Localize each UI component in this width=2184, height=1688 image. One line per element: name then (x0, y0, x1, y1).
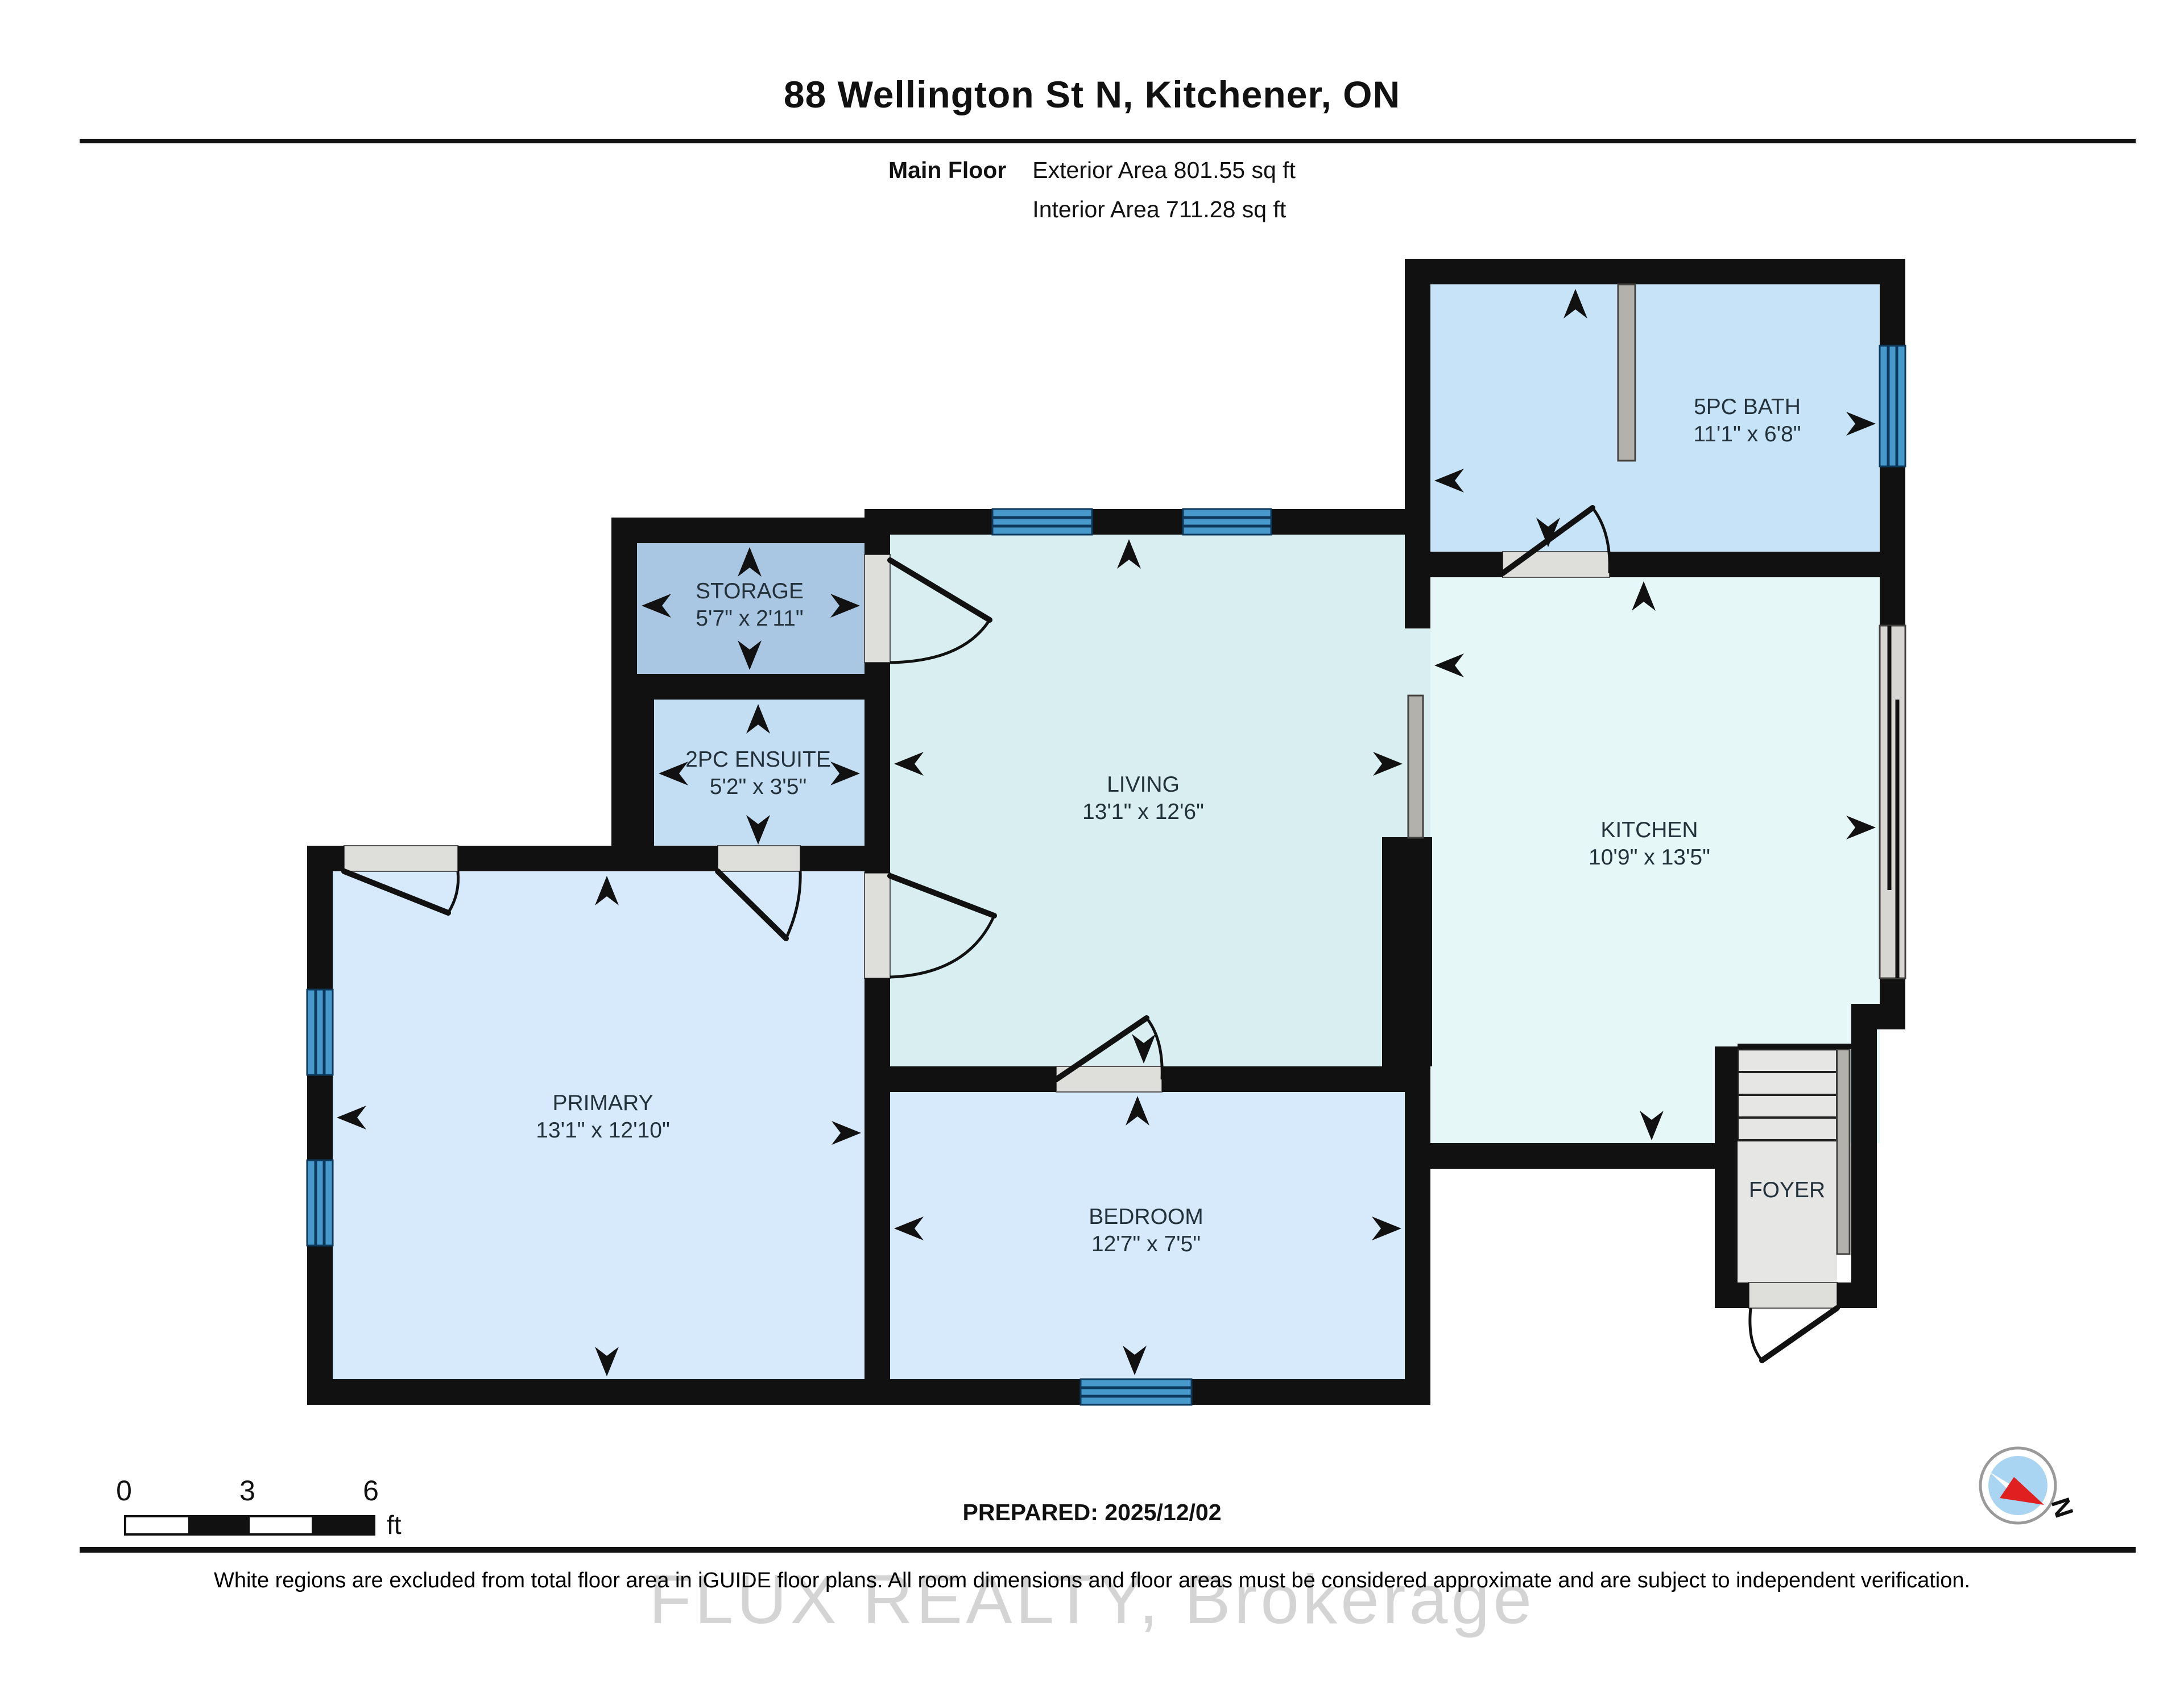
living-window-left (992, 509, 1092, 535)
primary-entry-door-sill (344, 846, 458, 871)
stair-tread (1738, 1118, 1837, 1140)
floorplan-drawing: STORAGE 5'7" x 2'11" 2PC ENSUITE 5'2" x … (0, 0, 2184, 1688)
kitchen-dims: 10'9" x 13'5" (1589, 845, 1710, 870)
front-door-sill (1749, 1282, 1837, 1308)
foyer-stairs (1738, 1044, 1851, 1282)
storage-door-sill (864, 555, 890, 663)
bath-label: 5PC BATH (1694, 395, 1801, 419)
storage-label: STORAGE (696, 579, 804, 603)
bedroom-label: BEDROOM (1089, 1205, 1203, 1229)
kitchen-label: KITCHEN (1600, 818, 1698, 842)
primary-window-top (307, 990, 333, 1075)
stair-tread (1738, 1049, 1837, 1072)
ensuite-label: 2PC ENSUITE (685, 747, 831, 772)
living-dims: 13'1" x 12'6" (1082, 800, 1204, 824)
ensuite-door-sill (718, 846, 800, 871)
living-kitchen-half-wall (1408, 696, 1423, 838)
ensuite-dims: 5'2" x 3'5" (710, 775, 807, 799)
primary-label: PRIMARY (553, 1091, 653, 1115)
stair-railing (1837, 1049, 1850, 1254)
foyer-label: FOYER (1749, 1178, 1825, 1202)
primary-dims: 13'1" x 12'10" (536, 1118, 670, 1143)
stair-tread (1738, 1072, 1837, 1095)
storage-dims: 5'7" x 2'11" (696, 606, 803, 631)
stair-tread (1738, 1095, 1837, 1118)
floorplan-page: 88 Wellington St N, Kitchener, ON Main F… (0, 0, 2184, 1688)
primary-living-door-sill (864, 873, 890, 978)
prepared-date: PREPARED: 2025/12/02 (0, 1499, 2184, 1526)
primary-window-bottom (307, 1160, 333, 1246)
bedroom-window (1081, 1379, 1192, 1405)
stair-top-edge (1738, 1044, 1851, 1049)
kitchen-slider-window (1880, 626, 1905, 978)
foyer-floor (1738, 1140, 1837, 1282)
living-label: LIVING (1107, 772, 1180, 797)
bedroom-dims: 12'7" x 7'5" (1091, 1232, 1201, 1256)
bath-dims: 11'1" x 6'8" (1693, 422, 1801, 446)
bath-floor (1430, 284, 1880, 552)
bath-window (1880, 346, 1905, 466)
bath-partition-wall (1618, 284, 1635, 461)
living-window-right (1183, 509, 1271, 535)
front-door (1750, 1308, 1837, 1360)
disclaimer-text: White regions are excluded from total fl… (0, 1569, 2184, 1593)
footer-divider (80, 1547, 2136, 1553)
